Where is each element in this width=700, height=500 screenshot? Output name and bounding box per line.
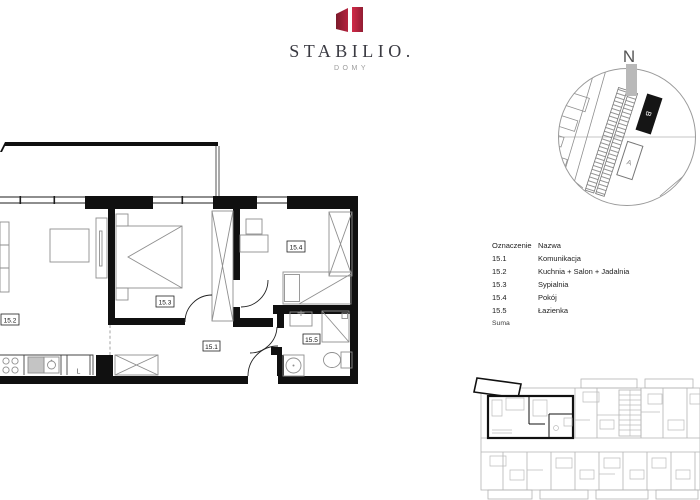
- logo-title: STABILIO.: [250, 41, 450, 62]
- toilet: [324, 353, 341, 368]
- room-labels: 15.2 15.3 15.4 15.1 15.5: [1, 241, 320, 351]
- legend-header-id: Oznaczenie: [492, 239, 538, 252]
- north-arrow-icon: [626, 64, 637, 96]
- door-arcs: [185, 280, 278, 376]
- legend-row-id: 15.4: [492, 291, 538, 304]
- legend-row-id: 15.1: [492, 252, 538, 265]
- logo-subtitle: DOMY: [250, 65, 450, 72]
- fridge-label: L: [77, 369, 81, 376]
- sink-drainer: [28, 357, 44, 373]
- map-buildings-left: [545, 90, 589, 167]
- balcony: [0, 142, 220, 197]
- floor-plan: L: [0, 130, 380, 400]
- stabilio-logo-icon: [332, 4, 368, 34]
- stabilio-logo: STABILIO. DOMY: [250, 4, 450, 72]
- room-sypialnia: [116, 211, 233, 321]
- legend-row-name: Pokój: [538, 291, 557, 304]
- legend-row-name: Komunikacja: [538, 252, 581, 265]
- legend-row: 15.5 Łazienka: [492, 304, 629, 317]
- key-plan-highlighted-unit: [474, 378, 573, 438]
- label-15-3: 15.3: [159, 300, 172, 307]
- map-building-a: A: [617, 141, 643, 179]
- legend-row: 15.2 Kuchnia + Salon + Jadalnia: [492, 265, 629, 278]
- top-wall: [0, 196, 358, 209]
- legend-footer: Suma: [492, 317, 629, 330]
- legend-row-name: Łazienka: [538, 304, 568, 317]
- logo-book-left: [336, 8, 348, 32]
- label-15-5: 15.5: [305, 337, 318, 344]
- legend-row: 15.4 Pokój: [492, 291, 629, 304]
- north-label: N: [623, 47, 635, 66]
- map-roads-right: [660, 68, 700, 203]
- legend-row: 15.3 Sypialnia: [492, 278, 629, 291]
- room-pokoj: [240, 212, 352, 304]
- label-15-2: 15.2: [4, 318, 17, 325]
- label-15-4: 15.4: [290, 245, 303, 252]
- legend-row-name: Sypialnia: [538, 278, 568, 291]
- logo-book-right: [352, 7, 363, 32]
- legend-row-name: Kuchnia + Salon + Jadalnia: [538, 265, 629, 278]
- room-kuchnia-salon: L: [0, 218, 107, 376]
- room-komunikacja: [110, 325, 158, 375]
- legend-header-name: Nazwa: [538, 239, 561, 252]
- label-15-1: 15.1: [205, 344, 218, 351]
- legend-row-id: 15.3: [492, 278, 538, 291]
- key-plan: [470, 372, 700, 500]
- legend-table: Oznaczenie Nazwa 15.1 Komunikacja 15.2 K…: [492, 239, 629, 330]
- legend-row: 15.1 Komunikacja: [492, 252, 629, 265]
- legend-row-id: 15.2: [492, 265, 538, 278]
- legend-header: Oznaczenie Nazwa: [492, 239, 629, 252]
- map-building-b: B: [636, 93, 663, 134]
- legend-row-id: 15.5: [492, 304, 538, 317]
- site-map: B A N: [545, 38, 700, 210]
- site-map-content: B A: [545, 66, 700, 203]
